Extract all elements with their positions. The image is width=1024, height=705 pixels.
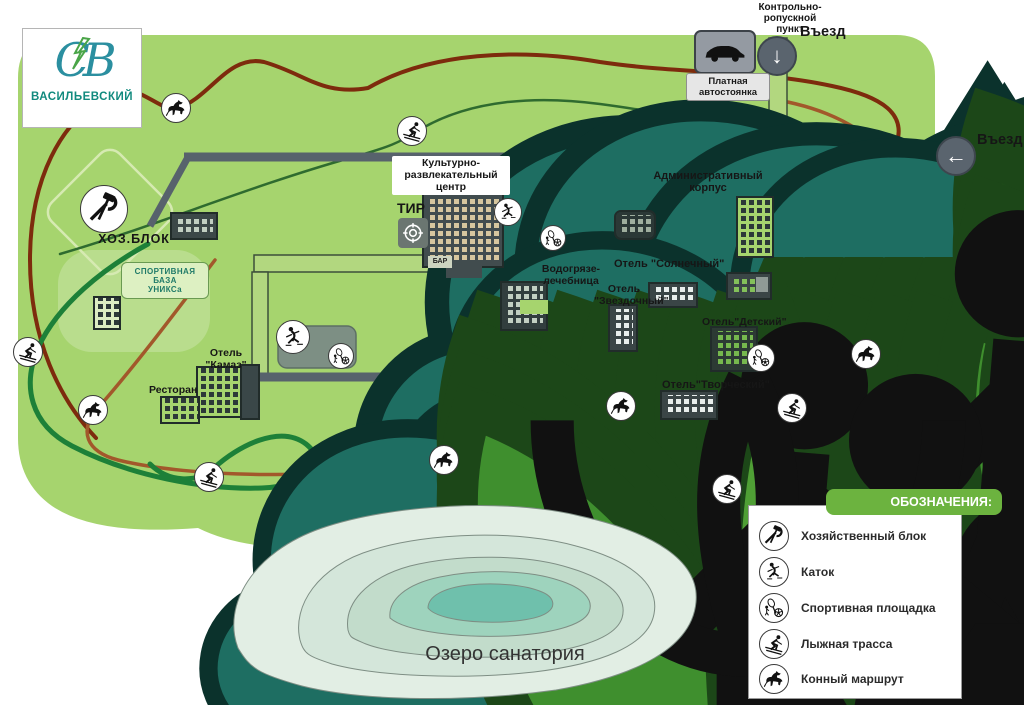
lake-label: Озеро санатория (400, 643, 610, 666)
utility-shed-building (172, 214, 216, 238)
lake-center (428, 584, 553, 622)
hotel-tvorchesky-building (662, 392, 716, 418)
hotel-sun-annex-court (756, 277, 768, 292)
tir-label: ТИР (397, 201, 425, 217)
horse-route-icon (161, 93, 191, 123)
ski-trail-icon (777, 393, 807, 423)
legend-item-label: Конный маршрут (801, 672, 904, 686)
restaurant-building (160, 396, 200, 424)
skater-icon (759, 557, 789, 587)
parking-label: Платная автостоянка (686, 73, 770, 101)
target-icon (402, 222, 424, 244)
sport-icon (759, 593, 789, 623)
legend-item-label: Спортивная площадка (801, 601, 936, 615)
legend-item-sports-ground: Спортивная площадка (759, 592, 936, 624)
sanatorium-map: ↓ ← Контрольно- ропускной пункт Въезд Въ… (0, 0, 1024, 705)
left-arrow-icon: ← (945, 143, 967, 169)
legend-item-ski-trail: Лыжная трасса (759, 628, 892, 660)
top-entrance-label: Въезд (800, 24, 846, 40)
top-entrance-marker: ↓ (757, 36, 797, 76)
legend-item-utility-block: Хозяйственный блок (759, 520, 926, 552)
ski-trail-icon (397, 116, 427, 146)
horse-route-icon (429, 445, 459, 475)
culture-center-label: Культурно- развлекательный центр (392, 156, 510, 195)
shooting-range-sign (398, 218, 428, 248)
horse-route-icon (606, 391, 636, 421)
legend-title: ОБОЗНАЧЕНИЯ: (826, 489, 1002, 515)
bar-label: БАР (428, 256, 452, 268)
legend-item-label: Лыжная трасса (801, 637, 892, 651)
sportbaza-label: СПОРТИВНАЯ БАЗА УНИКСа (121, 262, 209, 299)
logo-flash-icon (69, 37, 95, 73)
sports-ground-icon (328, 343, 354, 369)
legend-item-skating-rink: Каток (759, 556, 834, 588)
ski-trail-icon (194, 462, 224, 492)
admin-label: Административный корпус (640, 170, 776, 195)
alley-vertical-west (252, 272, 268, 378)
logo: СВ ВАСИЛЬЕВСКИЙ (22, 28, 142, 128)
ski-trail-icon (13, 337, 43, 367)
restaurant-label: Ресторан (149, 385, 197, 397)
hotel-sun-label: Отель "Солнечный" (614, 258, 724, 270)
hotel-star-label: Отель "Звездочный" (594, 284, 654, 308)
legend-item-label: Хозяйственный блок (801, 529, 926, 543)
skating-rink-icon (276, 320, 310, 354)
hotel-kids-label: Отель"Детский" (702, 317, 787, 329)
horse-route-icon (78, 395, 108, 425)
legend-panel: Хозяйственный блок Каток Спортивная площ… (748, 505, 962, 699)
right-entrance-label: Въезд (977, 132, 1023, 148)
sports-ground-icon (747, 344, 775, 372)
ski-trail-icon (712, 474, 742, 504)
horse-route-icon (851, 339, 881, 369)
shuttle-vehicle (616, 212, 654, 238)
mud-bath-label: Водогрязе- лечебница (540, 264, 602, 288)
sports-ground-icon (540, 225, 566, 251)
legend-item-horse-route: Конный маршрут (759, 663, 904, 695)
hotel-kamaz-wing (242, 366, 258, 418)
utility-block-icon (80, 185, 128, 233)
legend-item-label: Каток (801, 565, 834, 579)
sportbaza-building (93, 296, 121, 330)
down-arrow-icon: ↓ (772, 43, 783, 69)
hotel-kamaz-label: Отель "Камаз" (198, 348, 254, 372)
logo-name: ВАСИЛЬЕВСКИЙ (23, 91, 141, 103)
admin-building (736, 196, 774, 258)
horse-icon (759, 664, 789, 694)
mud-bath-clinic-notch (520, 300, 548, 314)
parking-sign (694, 30, 756, 74)
skating-rink-icon (494, 198, 522, 226)
right-entrance-marker: ← (936, 136, 976, 176)
skier-icon (759, 629, 789, 659)
tools-icon (759, 521, 789, 551)
hotel-tvorchesky-label: Отель"Творческий" (662, 379, 770, 391)
hotel-star-building (610, 306, 636, 350)
hozblok-label: ХОЗ.БЛОК (92, 232, 176, 246)
car-icon (703, 42, 747, 63)
